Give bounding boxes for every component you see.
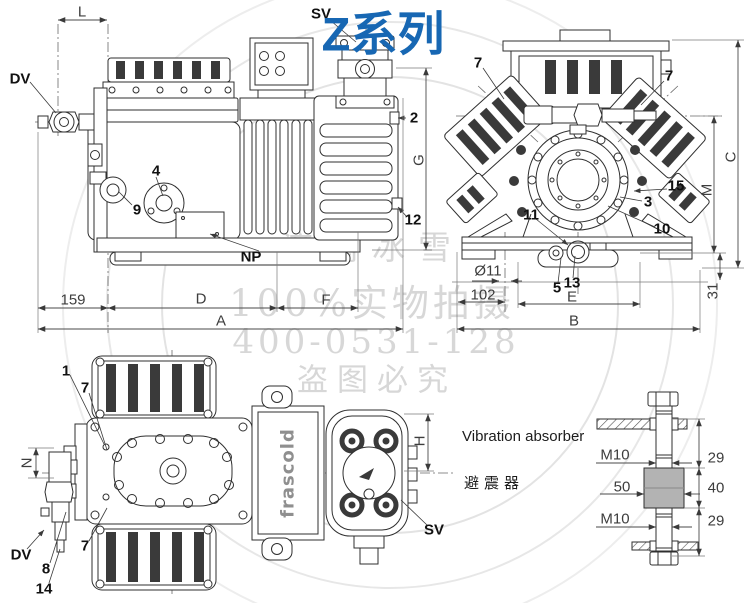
dim-label-40: 40 [708, 481, 725, 496]
absorber-title-en: Vibration absorber [462, 428, 584, 445]
part-label-10: 10 [654, 222, 671, 237]
dim-label-a: A [216, 314, 226, 329]
terminal-box [250, 38, 313, 98]
suction-valve-topview [326, 410, 417, 564]
part-label-7-left: 7 [474, 56, 482, 71]
dim-label-102: 102 [470, 288, 495, 303]
part-label-7-top: 7 [81, 381, 89, 396]
dim-label-m10-top: M10 [600, 448, 629, 463]
part-label-1: 1 [62, 364, 70, 379]
dim-label-29-bottom: 29 [708, 514, 725, 529]
technical-drawing-page: 济南冰雪 100%实物拍摄 400-0531-128 盗图必究 [0, 0, 752, 603]
discharge-valve-side [38, 112, 94, 132]
part-label-8: 8 [42, 562, 50, 577]
dim-label-d: D [196, 292, 207, 307]
dim-label-l: L [78, 5, 86, 20]
dim-label-159: 159 [60, 293, 85, 308]
part-label-4: 4 [152, 164, 160, 179]
dim-label-dia11: Ø11 [474, 264, 501, 279]
dim-label-m10-bottom: M10 [600, 512, 629, 527]
part-label-12: 12 [405, 213, 422, 228]
dim-label-50: 50 [614, 480, 631, 495]
part-label-np: NP [241, 250, 262, 265]
part-label-2: 2 [410, 111, 418, 126]
discharge-valve-topview [41, 452, 77, 552]
series-title: Z系列 [322, 0, 445, 65]
dim-label-b: B [569, 314, 579, 329]
dim-label-29-top: 29 [708, 451, 725, 466]
dim-label-n: N [20, 458, 35, 469]
dim-label-m: M [700, 184, 715, 197]
dim-label-c: C [724, 152, 739, 163]
dim-label-e: E [567, 290, 577, 305]
side-view-drawing [30, 20, 432, 333]
bearing-flange [528, 125, 628, 230]
part-label-7-right: 7 [665, 69, 673, 84]
part-label-dv-side: DV [10, 72, 31, 87]
dim-label-31: 31 [706, 283, 721, 300]
dim-label-h: H [413, 436, 428, 447]
part-label-14: 14 [36, 582, 53, 597]
part-label-5: 5 [553, 281, 561, 296]
part-label-11: 11 [523, 208, 539, 223]
crankcase-cover [113, 435, 234, 508]
part-label-15: 15 [668, 179, 685, 194]
part-label-3: 3 [644, 195, 652, 210]
part-label-sv-topview: SV [424, 523, 444, 538]
part-label-dv-topview: DV [11, 548, 32, 563]
compressor-drawing [0, 0, 752, 603]
part-label-9: 9 [133, 203, 141, 218]
nameplate [176, 212, 224, 240]
frascold-logo: frascold [278, 428, 299, 518]
dim-label-f: F [321, 293, 330, 308]
dim-label-g: G [412, 154, 427, 166]
top-view-drawing [27, 350, 456, 597]
part-label-7-bottom: 7 [81, 539, 89, 554]
absorber-title-zh: 避震器 [464, 472, 524, 493]
vibration-absorber-detail [596, 392, 705, 565]
